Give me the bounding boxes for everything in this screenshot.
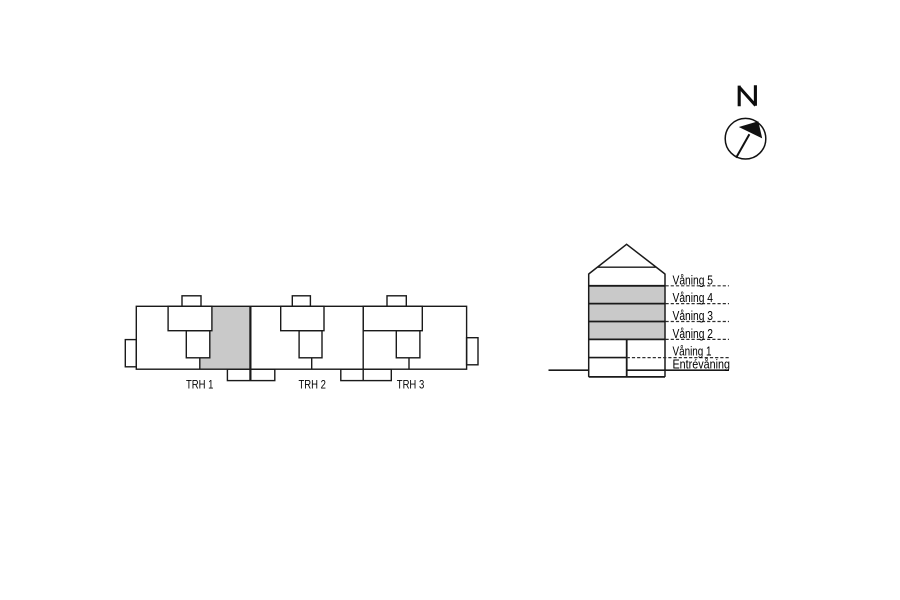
svg-text:TRH 3: TRH 3 <box>397 377 425 391</box>
svg-text:Våning 2: Våning 2 <box>673 326 714 341</box>
svg-text:Våning 5: Våning 5 <box>673 273 714 288</box>
svg-text:TRH 2: TRH 2 <box>298 377 326 391</box>
svg-text:TRH 1: TRH 1 <box>186 377 214 391</box>
svg-text:Våning 4: Våning 4 <box>673 290 714 305</box>
svg-text:Våning 3: Våning 3 <box>673 308 714 323</box>
svg-text:Entrévåning: Entrévåning <box>673 356 731 371</box>
